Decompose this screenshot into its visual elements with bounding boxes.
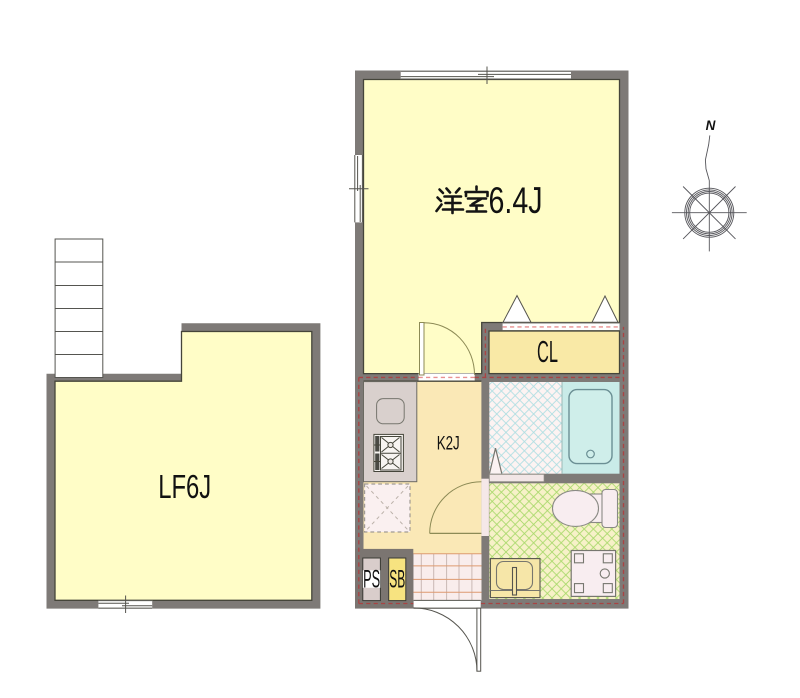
svg-text:SB: SB bbox=[389, 566, 405, 594]
svg-text:PS: PS bbox=[363, 566, 380, 594]
svg-text:K2J: K2J bbox=[437, 434, 460, 455]
svg-text:N: N bbox=[706, 118, 716, 133]
svg-text:6.4J: 6.4J bbox=[489, 180, 543, 221]
svg-text:LF6J: LF6J bbox=[158, 468, 211, 505]
svg-text:CL: CL bbox=[537, 334, 558, 369]
